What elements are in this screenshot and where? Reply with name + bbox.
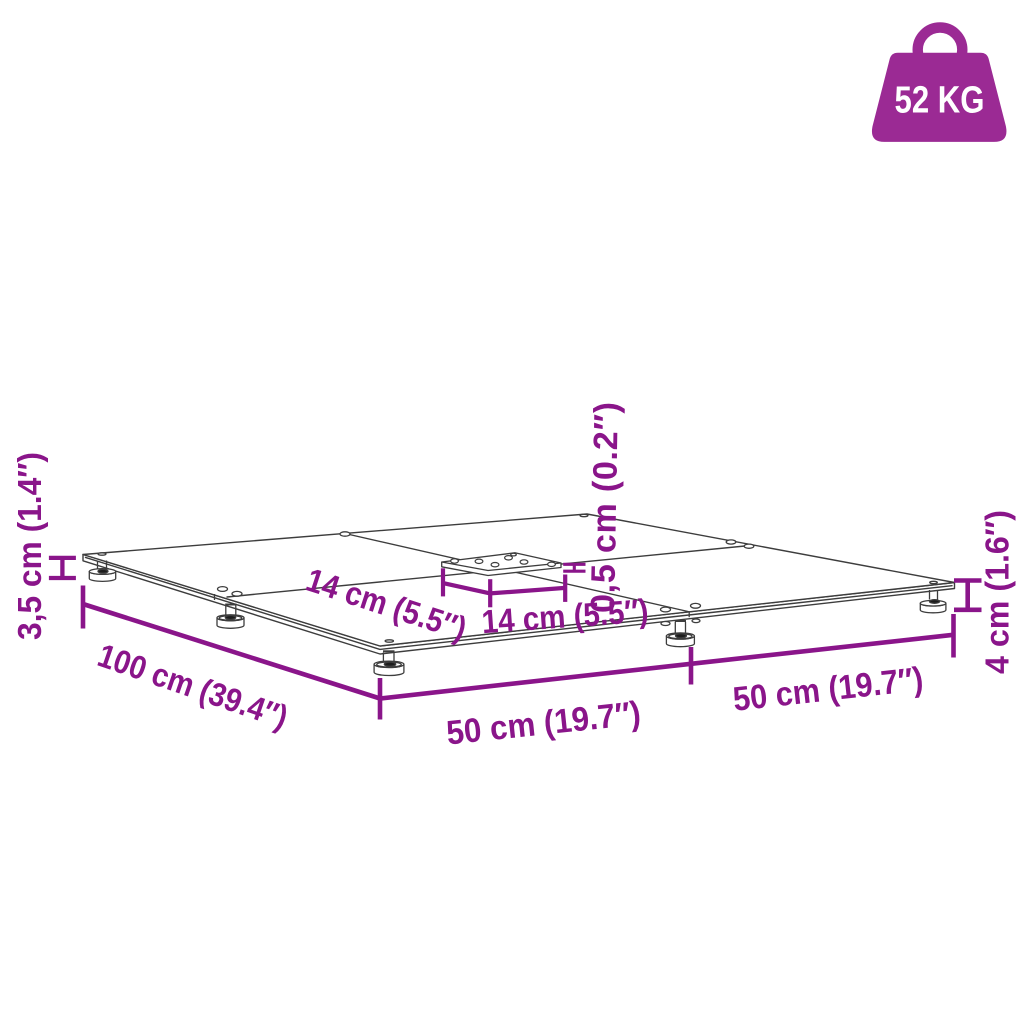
svg-text:3,5 cm (1.4″): 3,5 cm (1.4″) xyxy=(11,452,48,640)
svg-text:0,5 cm (0.2″): 0,5 cm (0.2″) xyxy=(584,402,626,614)
svg-text:4 cm (1.6″): 4 cm (1.6″) xyxy=(979,510,1016,674)
svg-text:52 KG: 52 KG xyxy=(895,80,985,122)
